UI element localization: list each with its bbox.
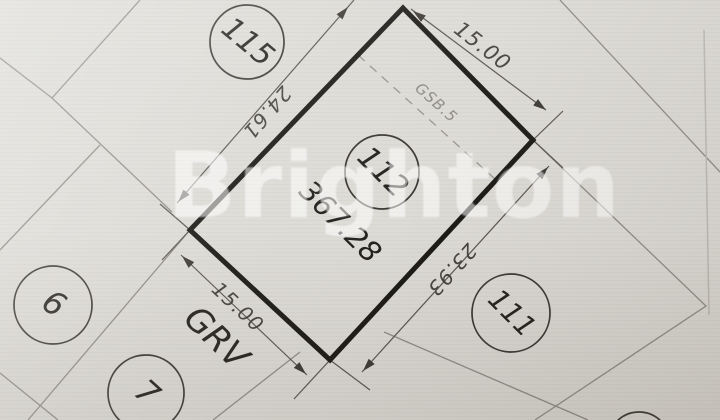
boundary-line-parcel111-southwest [384, 332, 588, 420]
parcel-label-6: 6 [35, 282, 73, 325]
parcel-label-115: 115 [214, 10, 280, 74]
site-plan-photo: 115 112 111 6 7 367.28 GRV GSB.5 15.00 2… [0, 0, 720, 420]
boundary-line-parcel6-7 [28, 230, 190, 420]
extension-line-se-right [533, 140, 563, 168]
setback-label: GSB.5 [411, 79, 461, 126]
parcel-label-111: 111 [481, 282, 542, 343]
boundary-line-bottomleft-corner [0, 373, 58, 420]
boundary-line-topright-block [560, 0, 720, 172]
boundary-line-topleft-junction [0, 0, 140, 98]
boundary-line-block-left [0, 145, 100, 250]
extension-line-ne-right [533, 111, 563, 140]
dimension-arrow [533, 99, 546, 110]
extension-line-se-bottom [330, 360, 370, 390]
boundary-line-road-northwest [52, 98, 172, 212]
parcel-label-7: 7 [127, 372, 168, 414]
parcel-circle-partial [608, 412, 670, 420]
paper-edge-line [704, 30, 709, 315]
parcel-label-112: 112 [350, 140, 415, 205]
extension-line-nw-left [160, 204, 190, 230]
extension-line-sw-left [162, 230, 190, 260]
dimension-label-northwest: 24.61 [238, 82, 297, 145]
boundary-line-parcel111-east [533, 140, 706, 420]
site-plan-drawing: 115 112 111 6 7 367.28 GRV GSB.5 15.00 2… [0, 0, 720, 420]
